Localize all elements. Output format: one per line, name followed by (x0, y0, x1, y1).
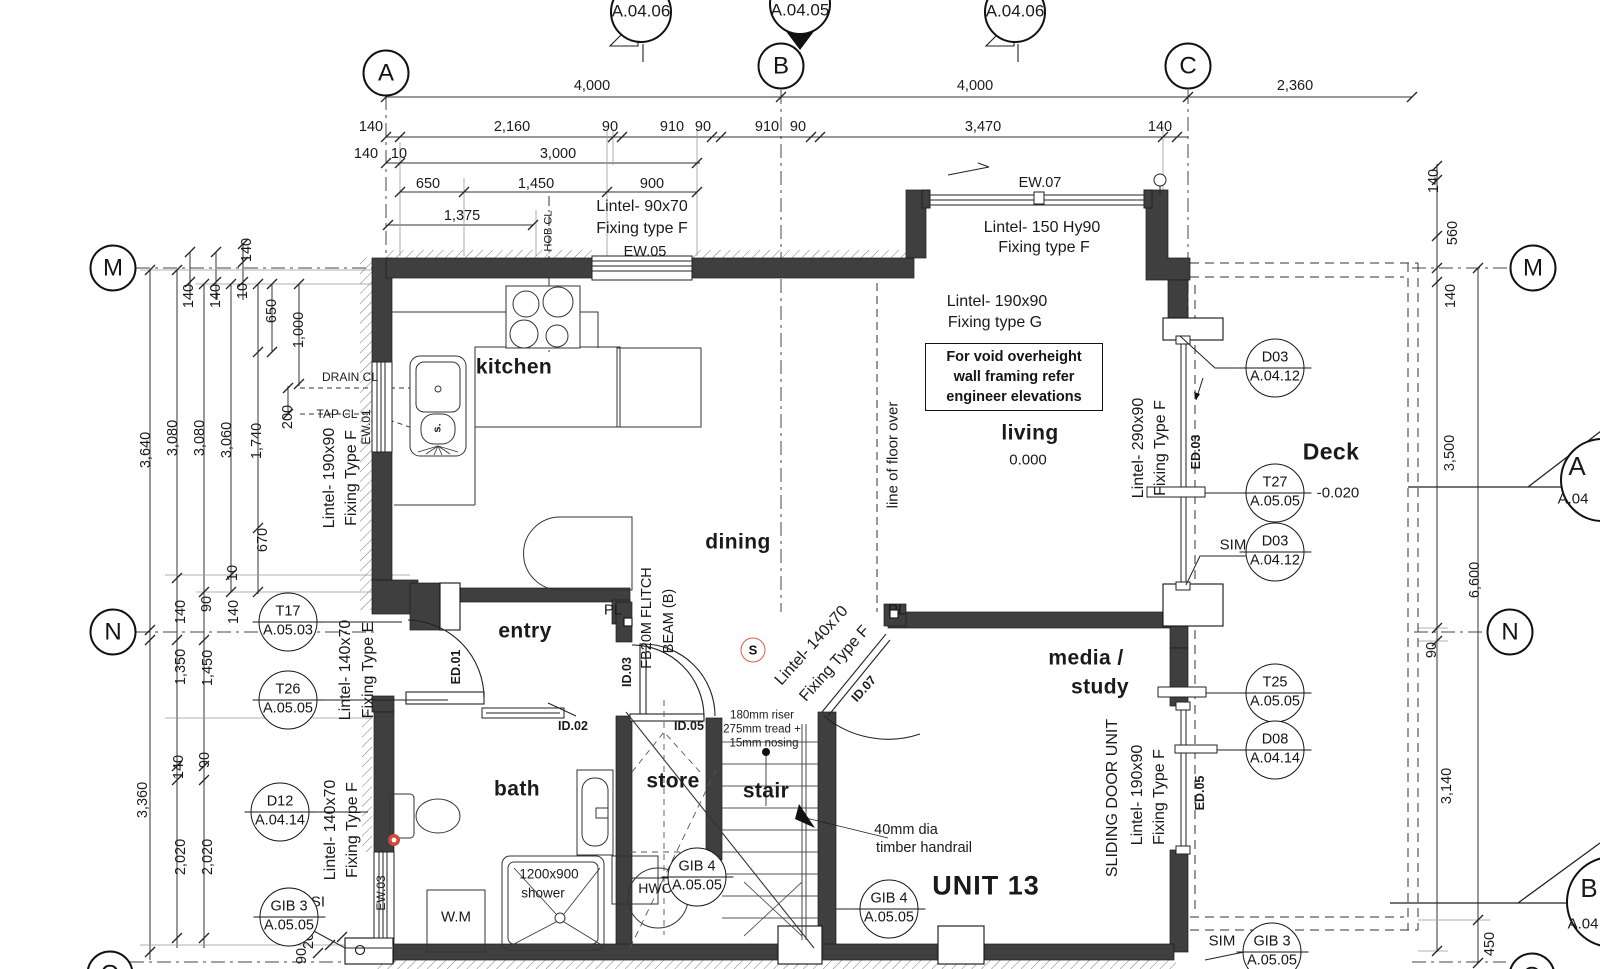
dim-label: 140 (172, 755, 187, 779)
door-code-id03: ID.03 (621, 657, 634, 687)
dim-label: 4,000 (574, 79, 610, 94)
lintel-note: Fixing Type E (361, 622, 377, 719)
room-label-deck: Deck (1303, 441, 1360, 464)
dim-label: 3,060 (220, 422, 235, 458)
tag-gib4: GIB 4A.05.05 (860, 880, 919, 939)
dim-label: 3,080 (166, 420, 181, 456)
tag-code: GIB 4 (870, 892, 907, 908)
dim-label: 1,450 (201, 650, 216, 686)
grid-bubble-c: C (1165, 43, 1212, 90)
dim-label: 560 (1446, 221, 1461, 245)
room-label-bath: bath (494, 779, 540, 800)
dim-label: 140 (209, 284, 224, 308)
lintel-note: Fixing Type F (1153, 400, 1169, 496)
lintel-note: Fixing Type F (345, 782, 361, 878)
note-handrail-1: 40mm dia (874, 823, 938, 838)
tag-sheet: A.05.05 (1250, 495, 1300, 511)
dim-label: 910 (755, 120, 779, 135)
dim-label: 1,375 (444, 209, 480, 224)
tag-d03-sim: D03A.04.12 (1246, 523, 1305, 582)
dim-label: 4,000 (957, 79, 993, 94)
smoke-alarm-symbol: S (741, 638, 766, 663)
tag-t17: T17A.05.03 (259, 593, 318, 652)
section-ref: A.04.05 (771, 2, 830, 19)
tag-sheet: A.04.14 (255, 814, 305, 830)
grid-bubble-m-left: M (90, 245, 137, 292)
dim-label: 140 (359, 120, 383, 135)
note-drain-cl: DRAIN CL (322, 371, 378, 383)
lintel-note: Lintel- 190x90 (1130, 745, 1146, 846)
note-tap-cl: TAP CL (317, 408, 358, 420)
grid-bubble-m-right: M (1510, 245, 1557, 292)
lintel-note: Lintel- 290x90 (1131, 398, 1147, 499)
note-riser: 180mm riser (730, 710, 794, 722)
tag-gib3: GIB 3A.05.05 (260, 888, 319, 947)
tag-code: GIB 3 (1253, 935, 1290, 951)
lintel-note: Lintel- 150 Hy90 (984, 220, 1101, 236)
dim-label: 90 (790, 120, 806, 135)
fixture-label-sink: s. (433, 423, 444, 432)
tag-sheet: A.04.12 (1250, 370, 1300, 386)
lintel-note: Lintel- 140x70 (323, 780, 339, 881)
dim-label: 2,020 (201, 839, 216, 875)
tag-sheet: A.05.05 (1247, 954, 1297, 969)
dim-label: 140 (354, 147, 378, 162)
floor-plan-page: { "drawing": { "unit": "UNIT 13", "grid"… (0, 0, 1600, 969)
lintel-note: Lintel- 140x70 (338, 620, 354, 721)
dim-label: 2,160 (494, 120, 530, 135)
door-code-ed05: ED.05 (1194, 776, 1207, 811)
door-code-ed01: ED.01 (450, 650, 463, 685)
tag-d03: D03A.04.12 (1246, 339, 1305, 398)
grid-bubble-n-left: N (90, 609, 137, 656)
note-sim: SIM (1209, 934, 1236, 949)
note-floor-over: line of floor over (886, 402, 901, 509)
void-note-line: For void overheight (928, 347, 1100, 367)
window-code-ew07: EW.07 (1019, 176, 1062, 191)
level-deck: -0.020 (1317, 486, 1360, 501)
window-code-ew01: EW.01 (360, 409, 372, 444)
dim-label: 90 (198, 752, 213, 768)
section-letter: A (1568, 453, 1585, 479)
dim-label: 3,360 (136, 782, 151, 818)
tag-sheet: A.05.05 (1250, 695, 1300, 711)
room-label-store: store (646, 771, 699, 792)
tag-sheet: A.05.03 (263, 624, 313, 640)
tag-d12: D12A.04.14 (251, 783, 310, 842)
room-label-media: media / (1048, 648, 1123, 669)
note-nosing: 15mm nosing (729, 738, 798, 750)
tag-sheet: A.05.05 (864, 911, 914, 927)
tag-gib4: GIB 4A.05.05 (668, 848, 727, 907)
tag-code: T26 (276, 683, 301, 699)
dim-label: 10 (391, 147, 407, 162)
dim-label: 140 (182, 284, 197, 308)
tag-sheet: A.04.14 (1250, 752, 1300, 768)
smoke-alarm-letter: S (749, 643, 758, 658)
room-label-dining: dining (705, 532, 770, 553)
dim-label: 1,450 (518, 177, 554, 192)
power-outlet-dot (388, 834, 400, 846)
tag-t26: T26A.05.05 (259, 671, 318, 730)
windows (372, 174, 1217, 938)
room-label-stair: stair (743, 781, 789, 802)
tag-t27: T27A.05.05 (1246, 464, 1305, 523)
section-ref: A.04 (1568, 917, 1599, 932)
note-pl: PL (604, 603, 622, 618)
window-code-ew03: EW.03 (375, 875, 387, 910)
tag-sheet: A.04.12 (1250, 554, 1300, 570)
tag-code: GIB 4 (678, 860, 715, 876)
dim-label: 90 (602, 120, 618, 135)
piers (345, 318, 1223, 964)
fixture-label-shower-size: 1200x900 (519, 867, 578, 881)
note-sim: SIM (1220, 538, 1247, 553)
tag-code: GIB 3 (270, 900, 307, 916)
lintel-note: Fixing type G (948, 315, 1042, 331)
dim-label: 140 (1444, 284, 1459, 308)
room-label-living: living (1001, 423, 1058, 444)
dim-label: 10 (236, 283, 251, 299)
dim-label: 1,350 (174, 649, 189, 685)
dim-label: 140 (1427, 169, 1442, 193)
lintel-note: Fixing Type F (344, 430, 360, 526)
section-ref: A.04.06 (612, 3, 671, 20)
dim-label: 10 (226, 565, 241, 581)
tag-t25: T25A.05.05 (1246, 664, 1305, 723)
lintel-note: Lintel- 190x90 (322, 428, 338, 529)
dim-label: 3,500 (1443, 435, 1458, 471)
section-ref: A.04.06 (986, 3, 1045, 20)
dim-label: 6,600 (1468, 562, 1483, 598)
dim-label: 670 (256, 528, 271, 552)
note-flitch-2: BEAM (B) (662, 589, 677, 653)
dim-label: 3,640 (139, 432, 154, 468)
dim-label: 140 (227, 600, 242, 624)
door-code-ed03: ED.03 (1190, 435, 1203, 470)
section-ref: A.04 (1558, 492, 1589, 507)
plan-canvas (0, 0, 1600, 969)
dim-label: 3,000 (540, 147, 576, 162)
dim-label: 900 (640, 177, 664, 192)
section-letter: B (1580, 875, 1597, 901)
note-flitch-1: FB20M FLITCH (640, 567, 655, 669)
window-code-ew05: EW.05 (624, 245, 667, 260)
note-tread: 275mm tread + (723, 724, 801, 736)
note-hob-cl: HOB CL (544, 211, 555, 252)
fixture-label-wm: W.M (441, 910, 471, 925)
tag-code: T25 (1263, 676, 1288, 692)
kitchen-fixtures (392, 286, 701, 590)
dim-label: 90 (1425, 642, 1440, 658)
tag-code: D03 (1262, 535, 1289, 551)
level-living: 0.000 (1009, 453, 1047, 468)
dim-label: 200 (281, 405, 296, 429)
dim-label: 140 (240, 238, 255, 262)
room-label-entry: entry (498, 621, 551, 642)
door-code-id05: ID.05 (674, 720, 704, 733)
unit-label: UNIT 13 (932, 873, 1040, 900)
dim-label: 3,080 (193, 420, 208, 456)
dim-label: 90 (695, 120, 711, 135)
void-note-line: engineer elevations (928, 387, 1100, 407)
tag-code: D12 (267, 795, 294, 811)
tag-sheet: A.05.05 (263, 702, 313, 718)
lintel-note: Fixing type F (596, 221, 688, 237)
void-note-box: For void overheight wall framing refer e… (925, 343, 1103, 411)
tag-code: T17 (276, 605, 301, 621)
dim-label: 2,020 (174, 839, 189, 875)
note-pl: PL (888, 603, 906, 618)
dim-label: 3,140 (1440, 768, 1455, 804)
lintel-note: Lintel- 190x90 (947, 294, 1048, 310)
fixture-label-hwc: HWC (638, 881, 671, 895)
dim-label: 910 (660, 120, 684, 135)
dim-label: 3,470 (965, 120, 1001, 135)
lintel-note: SLIDING DOOR UNIT (1105, 719, 1121, 877)
grid-bubble-a: A (363, 50, 410, 97)
dim-label: 140 (1148, 120, 1172, 135)
dim-label: 1,740 (250, 423, 265, 459)
lintel-note: Fixing type F (998, 240, 1090, 256)
door-code-id02: ID.02 (558, 720, 588, 733)
tag-d08: D08A.04.14 (1246, 721, 1305, 780)
note-handrail-2: timber handrail (876, 841, 972, 856)
grid-bubble-n-right: N (1487, 609, 1534, 656)
dim-label: 2,360 (1277, 79, 1313, 94)
dim-label: 650 (265, 299, 280, 323)
dim-label: 1,000 (292, 312, 307, 348)
grid-bubble-b: B (758, 43, 805, 90)
lintel-note: Fixing Type F (1152, 749, 1168, 845)
dim-label: 650 (416, 177, 440, 192)
tag-code: T27 (1263, 476, 1288, 492)
lintel-note: Lintel- 90x70 (596, 199, 688, 215)
tag-code: D08 (1262, 733, 1289, 749)
room-label-kitchen: kitchen (476, 357, 552, 378)
dim-label: 90 (200, 596, 215, 612)
room-label-study: study (1071, 677, 1129, 698)
void-note-line: wall framing refer (928, 367, 1100, 387)
dim-label: 450 (1483, 932, 1498, 956)
tag-sheet: A.05.05 (672, 879, 722, 895)
tag-code: D03 (1262, 351, 1289, 367)
tag-sheet: A.05.05 (264, 919, 314, 935)
dim-label: 90 (295, 948, 310, 964)
dim-label: 140 (174, 600, 189, 624)
fixture-label-shower: shower (521, 886, 565, 900)
